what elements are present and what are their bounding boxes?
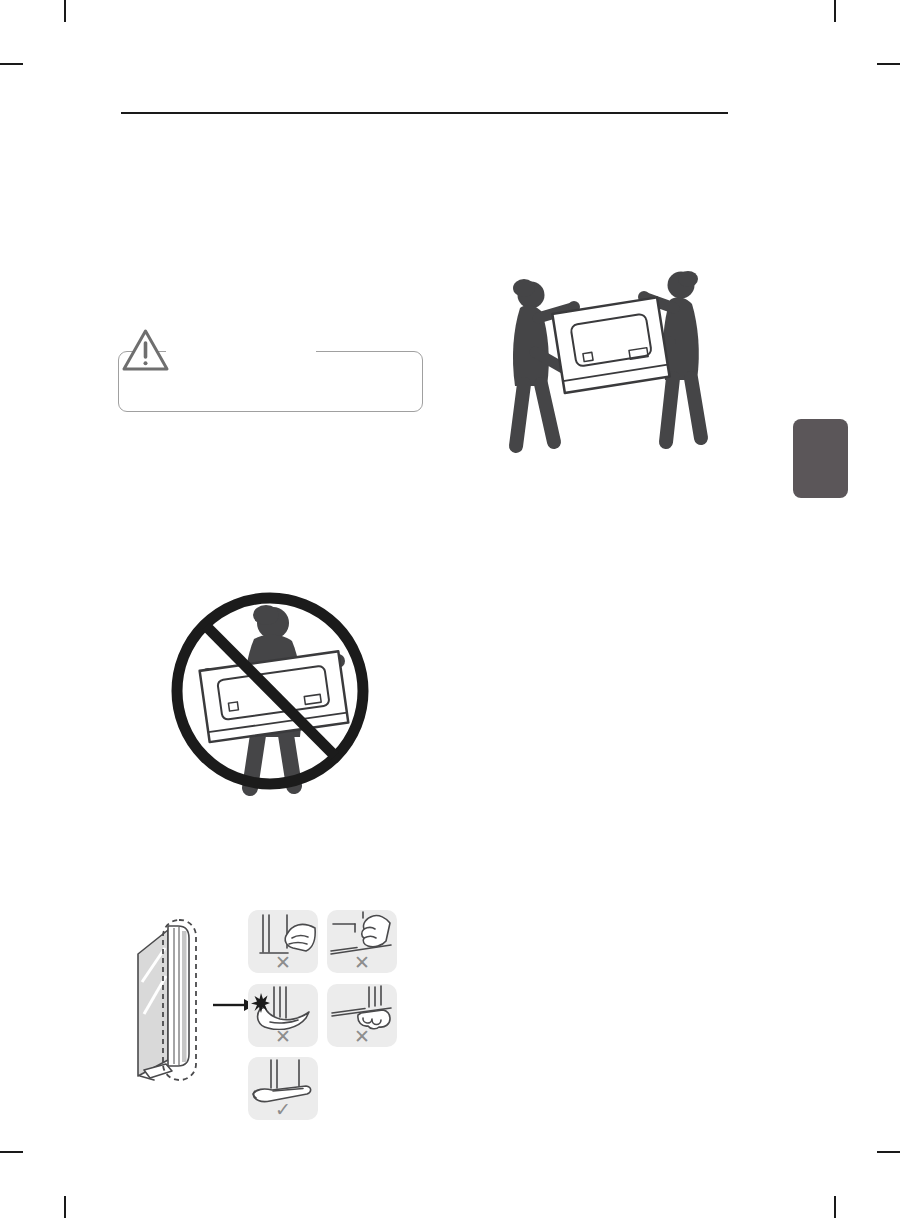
crop-mark-bottom-right-horizontal — [877, 1151, 900, 1153]
cross-mark: ✕ — [327, 1027, 397, 1047]
fist-gripping-edge-icon — [327, 910, 397, 956]
grip-panel-bottom-edge-fingers: ✕ — [327, 984, 397, 1047]
cross-mark: ✕ — [327, 953, 397, 973]
crop-mark-bottom-left-vertical — [64, 1196, 66, 1218]
hand-gripping-screen-icon — [248, 910, 318, 956]
cross-mark: ✕ — [248, 953, 318, 973]
crop-mark-top-left-vertical — [64, 0, 66, 22]
grip-panel-front-edge-fingers: ✕ — [327, 910, 397, 973]
tv-side-view-with-dashed-highlight — [132, 918, 216, 1084]
do-not-carry-alone-prohibition-illustration — [170, 585, 370, 797]
manual-page: ✕ ✕ ✕ — [0, 0, 900, 1218]
crop-mark-top-left-horizontal — [0, 63, 23, 65]
check-mark: ✓ — [248, 1100, 318, 1120]
crop-mark-top-right-horizontal — [877, 63, 900, 65]
crop-mark-top-right-vertical — [834, 0, 836, 22]
warning-triangle-icon — [121, 327, 170, 373]
crop-mark-bottom-left-horizontal — [0, 1151, 23, 1153]
caution-title-gap — [166, 345, 316, 357]
flat-palm-support-icon — [248, 1057, 318, 1103]
hand-cupping-corner-impact-icon — [248, 984, 318, 1030]
two-people-carrying-tv-illustration — [498, 256, 716, 458]
crop-mark-bottom-right-vertical — [834, 1196, 836, 1218]
grip-panel-flat-palm-support: ✓ — [248, 1057, 318, 1120]
header-rule — [121, 112, 728, 114]
cross-mark: ✕ — [248, 1027, 318, 1047]
tv-back-view — [552, 297, 669, 393]
grip-panel-screen-surface: ✕ — [248, 910, 318, 973]
chapter-tab — [793, 419, 848, 498]
knuckles-under-edge-icon — [327, 984, 397, 1030]
grip-panel-corner-impact: ✕ — [248, 984, 318, 1047]
